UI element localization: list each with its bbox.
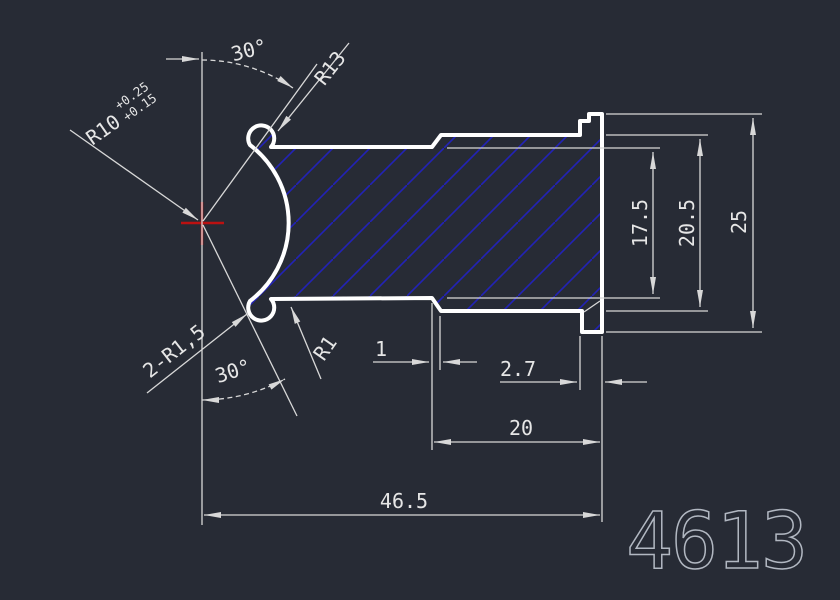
part-section [248,114,602,332]
dim-text-1: 1 [375,337,387,361]
part-outline [248,114,602,332]
leader-text-r13: R13 [309,46,350,89]
dim-dia-17-5: 17.5 [628,152,653,294]
dim-text-2-7: 2.7 [500,357,536,381]
dim-text-angle-bottom: 30° [212,354,254,388]
dim-text-46-5: 46.5 [380,489,428,513]
dim-dia-20-5: 20.5 [675,139,700,307]
leader-line-r10 [70,130,198,220]
dim-text-angle-top: 30° [228,34,269,67]
dim-chamfer-1: 1 [373,337,477,362]
dim-text-17-5: 17.5 [628,199,652,247]
angle-bottom-arc [202,379,285,400]
dim-step-20: 20 [434,416,600,442]
leader-r1: R1 [291,307,342,379]
dim-dia-25: 25 [727,118,753,328]
dim-text-25: 25 [727,210,751,234]
dim-text-20-5: 20.5 [675,199,699,247]
leader-r10: R10 +0.25 +0.15 [70,79,198,220]
leader-text-fillets: 2-R1,5 [138,319,210,382]
angle-top-arc [202,60,293,88]
dim-text-20: 20 [509,416,533,440]
dim-flange-2-7: 2.7 [500,357,647,382]
cad-canvas: 17.5 20.5 25 1 2.7 20 46.5 30° 30° [0,0,840,600]
drawing-number: 4613 [626,497,806,587]
leader-r13: R13 [278,43,351,131]
dim-total-46-5: 46.5 [204,489,600,515]
leader-text-r10: R10 [81,109,124,149]
